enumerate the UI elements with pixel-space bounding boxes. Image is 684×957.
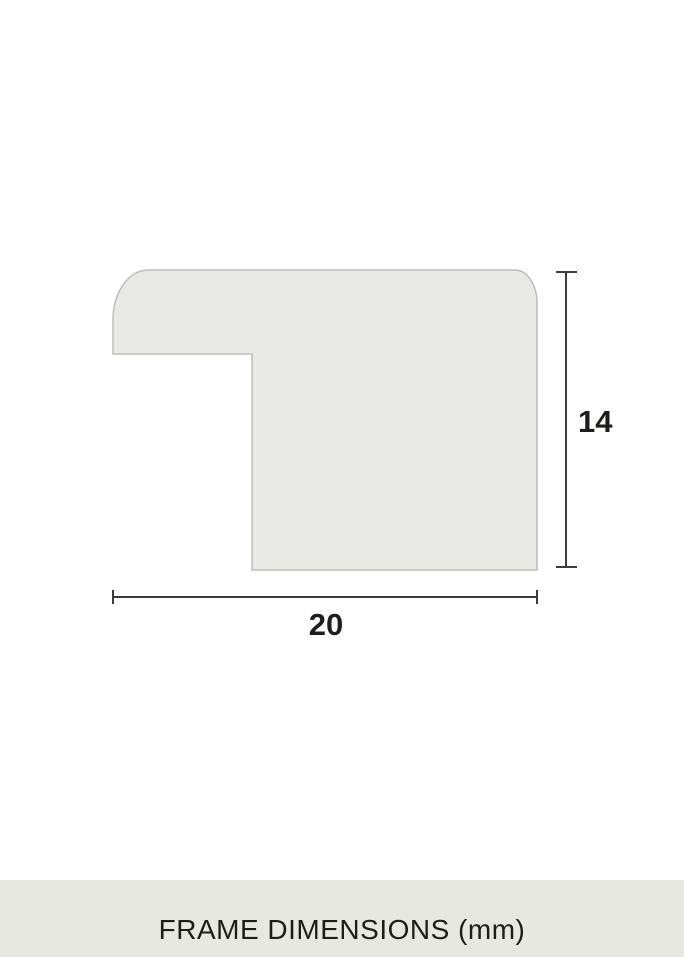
width-dimension-line: [113, 590, 537, 604]
footer-caption-bar: FRAME DIMENSIONS (mm): [0, 880, 684, 957]
height-dimension-line: [556, 272, 577, 567]
frame-dimensions-figure: 14 20 FRAME DIMENSIONS (mm): [0, 0, 684, 957]
height-dimension-label: 14: [578, 404, 613, 439]
frame-profile-diagram: 14 20: [0, 0, 684, 880]
width-dimension-label: 20: [309, 607, 343, 642]
footer-caption-text: FRAME DIMENSIONS (mm): [159, 914, 526, 946]
frame-profile-shape: [113, 270, 537, 570]
